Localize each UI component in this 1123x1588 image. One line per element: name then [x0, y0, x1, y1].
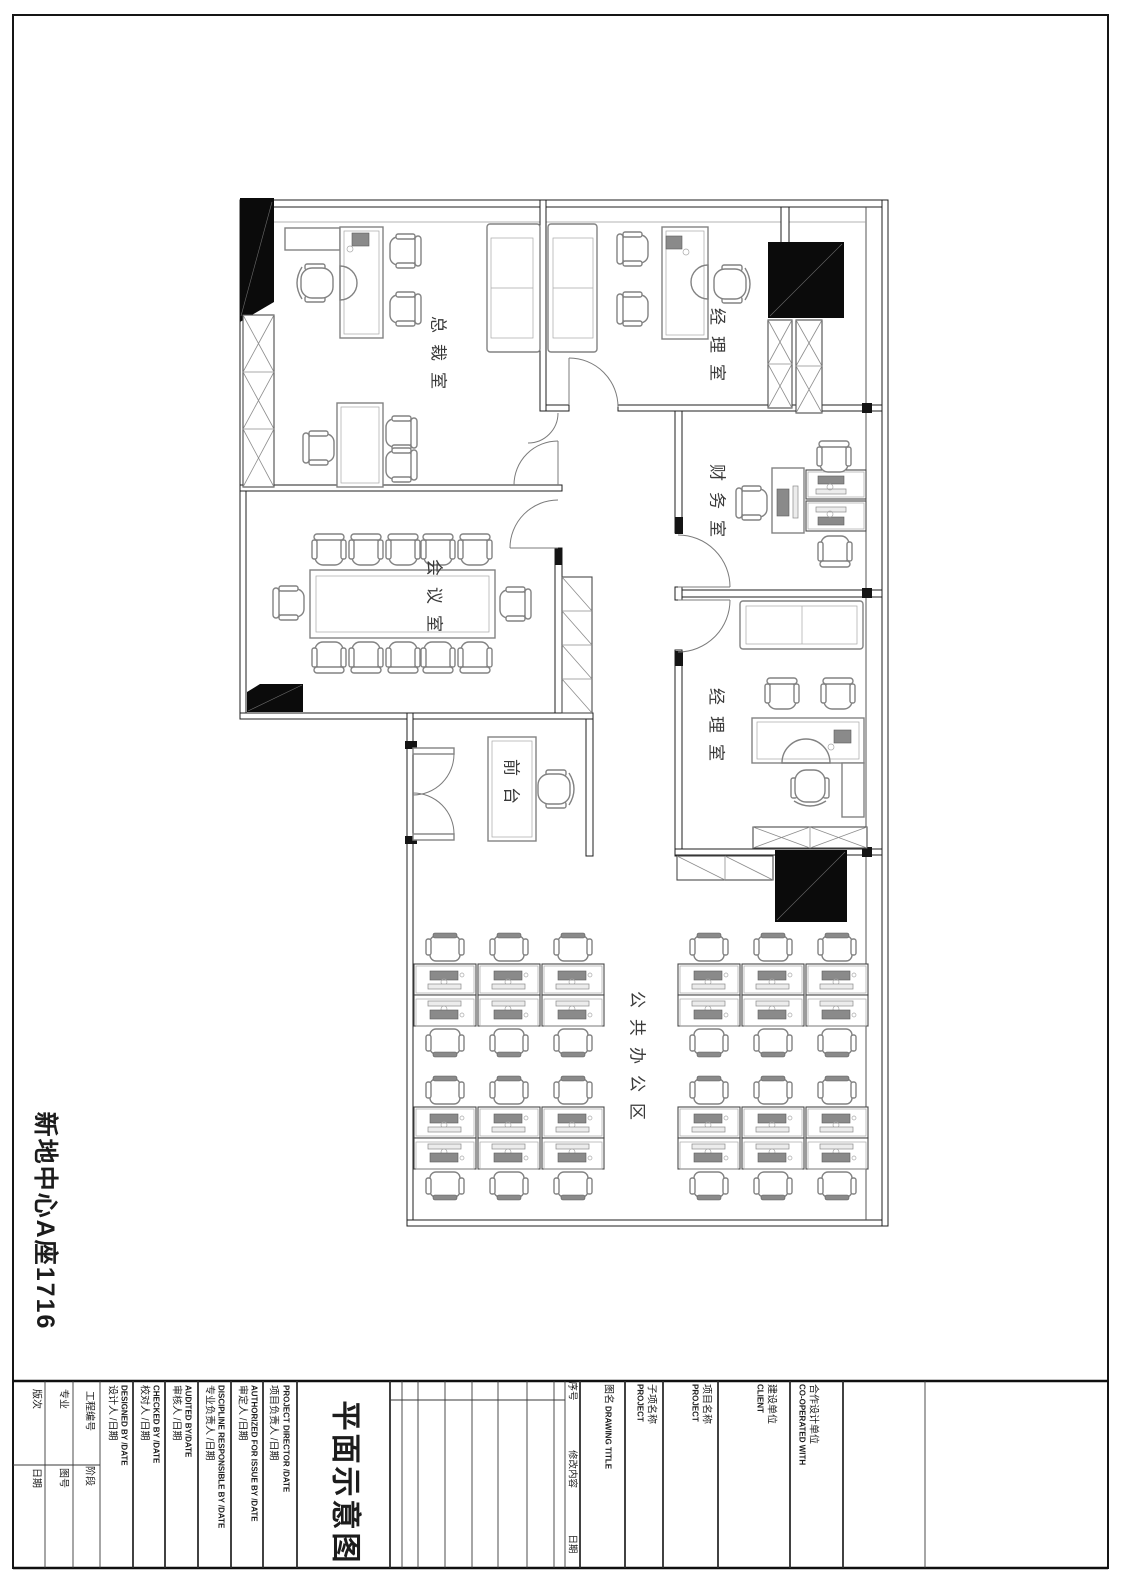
conference-chair	[386, 534, 420, 565]
room-label: 总裁室	[429, 316, 448, 400]
drawing-name-en: DRAWING TITLE	[604, 1406, 613, 1470]
pc-tower-icon	[777, 489, 789, 516]
guest-chair	[390, 292, 421, 326]
rev-date-label: 日期	[567, 1534, 578, 1553]
room-label: 经理室	[708, 308, 727, 392]
sofa	[548, 224, 597, 352]
room-reception: 前台	[488, 737, 574, 841]
conference-chair	[386, 642, 420, 673]
conference-chair	[500, 587, 531, 621]
checked-by-cn: 校对人 /日期	[139, 1385, 152, 1441]
drawing-name-cn: 图名	[603, 1384, 616, 1404]
client-en: CLIENT	[756, 1384, 765, 1413]
room-manager-top: 经理室	[548, 224, 750, 392]
workstation-column	[478, 1076, 540, 1200]
workstation-column	[542, 1076, 604, 1200]
workstation-column	[414, 1076, 476, 1200]
room-meeting: 会议室	[273, 534, 531, 673]
project-director-en: PROJECT DIRECTOR /DATE	[282, 1385, 291, 1493]
office-chair	[714, 265, 750, 303]
sheet-no-label: 图号	[58, 1468, 70, 1488]
office-chair	[538, 770, 574, 808]
subproject-en: PROJECT	[636, 1384, 645, 1422]
title-block: 版次 日期 专业 图号 工程编号 阶段 设计人 /日期 DESIGNED BY …	[13, 1381, 1108, 1568]
workstation-column	[806, 933, 868, 1057]
room-finance: 财务室	[708, 441, 867, 567]
office-chair	[297, 264, 333, 302]
version-label: 版次	[31, 1389, 44, 1409]
floor-plan: 总裁室 经理室	[240, 198, 888, 1226]
sofa	[487, 224, 540, 352]
open-office-area: 公共办公区	[414, 933, 868, 1200]
task-chair	[818, 536, 852, 567]
workstation-column	[806, 1076, 868, 1200]
workstation-column	[742, 933, 804, 1057]
workstation-column	[742, 1076, 804, 1200]
conference-chair	[312, 534, 346, 565]
room-label: 经理室	[707, 688, 726, 772]
authorized-by-cn: 审定人 /日期	[237, 1385, 250, 1441]
room-label: 会议室	[425, 559, 444, 643]
checked-by-en: CHECKED BY /DATE	[152, 1385, 161, 1464]
discipline-label: 专业	[58, 1389, 71, 1409]
side-chair	[386, 448, 417, 482]
discipline-resp-cn: 专业负责人 /日期	[204, 1385, 217, 1461]
drawing-title: 平面示意图	[329, 1401, 363, 1566]
project-name-cn: 项目名称	[701, 1384, 714, 1424]
room-label: 前台	[502, 759, 521, 815]
room-president: 总裁室	[285, 224, 540, 487]
conference-chair	[421, 642, 455, 673]
room-manager-right: 经理室	[707, 601, 865, 817]
floor-plan-sheet: 总裁室 经理室	[0, 0, 1123, 1588]
project-no-label: 工程编号	[84, 1391, 97, 1431]
cooperated-cn: 合作设计单位	[808, 1384, 821, 1444]
side-chair	[386, 416, 417, 450]
conference-chair	[458, 642, 492, 673]
sheet-page: 总裁室 经理室	[0, 0, 1123, 1588]
workstation-column	[478, 933, 540, 1057]
guest-chair	[821, 678, 855, 709]
authorized-by-en: AUTHORIZED FOR ISSUE BY /DATE	[250, 1385, 259, 1522]
audited-by-cn: 审核人 /日期	[171, 1385, 184, 1441]
subproject-cn: 子项名称	[646, 1384, 659, 1424]
rev-no-label: 序号	[567, 1381, 579, 1400]
guest-chair	[765, 678, 799, 709]
workstation-column	[414, 933, 476, 1057]
conference-chair	[312, 642, 346, 673]
project-name-en: PROJECT	[691, 1384, 700, 1422]
sofa	[740, 601, 863, 649]
discipline-resp-en: DISCIPLINE RESPONSIBLE BY /DATE	[217, 1385, 226, 1529]
task-chair	[736, 486, 767, 520]
room-label: 公共办公区	[628, 991, 647, 1131]
task-chair	[817, 441, 851, 472]
guest-chair	[617, 292, 648, 326]
office-chair	[791, 770, 829, 806]
rev-content-label: 修改内容	[567, 1450, 579, 1489]
conference-chair	[349, 534, 383, 565]
room-label: 财务室	[708, 464, 727, 548]
side-cabinet	[842, 763, 864, 817]
guest-chair	[617, 232, 648, 266]
conference-chair	[458, 534, 492, 565]
monitor-icon	[793, 486, 798, 518]
workstation-column	[542, 933, 604, 1057]
sheet-side-label: 新地中心A座1716	[31, 1112, 60, 1331]
designed-by-en: DESIGNED BY /DATE	[120, 1385, 129, 1466]
date-label: 日期	[31, 1468, 43, 1488]
workstation-column	[678, 933, 740, 1057]
cooperated-en: CO-OPERATED WITH	[798, 1384, 807, 1465]
guest-chair	[390, 234, 421, 268]
audited-by-en: AUDITED BY/DATE	[184, 1385, 193, 1458]
designed-by-cn: 设计人 /日期	[107, 1385, 120, 1441]
stage-label: 阶段	[84, 1466, 97, 1486]
project-director-cn: 项目负责人 /日期	[268, 1385, 281, 1461]
side-chair	[303, 431, 334, 465]
client-cn: 建设单位	[766, 1384, 779, 1424]
conference-chair	[349, 642, 383, 673]
conference-chair	[273, 586, 304, 620]
workstation-column	[678, 1076, 740, 1200]
